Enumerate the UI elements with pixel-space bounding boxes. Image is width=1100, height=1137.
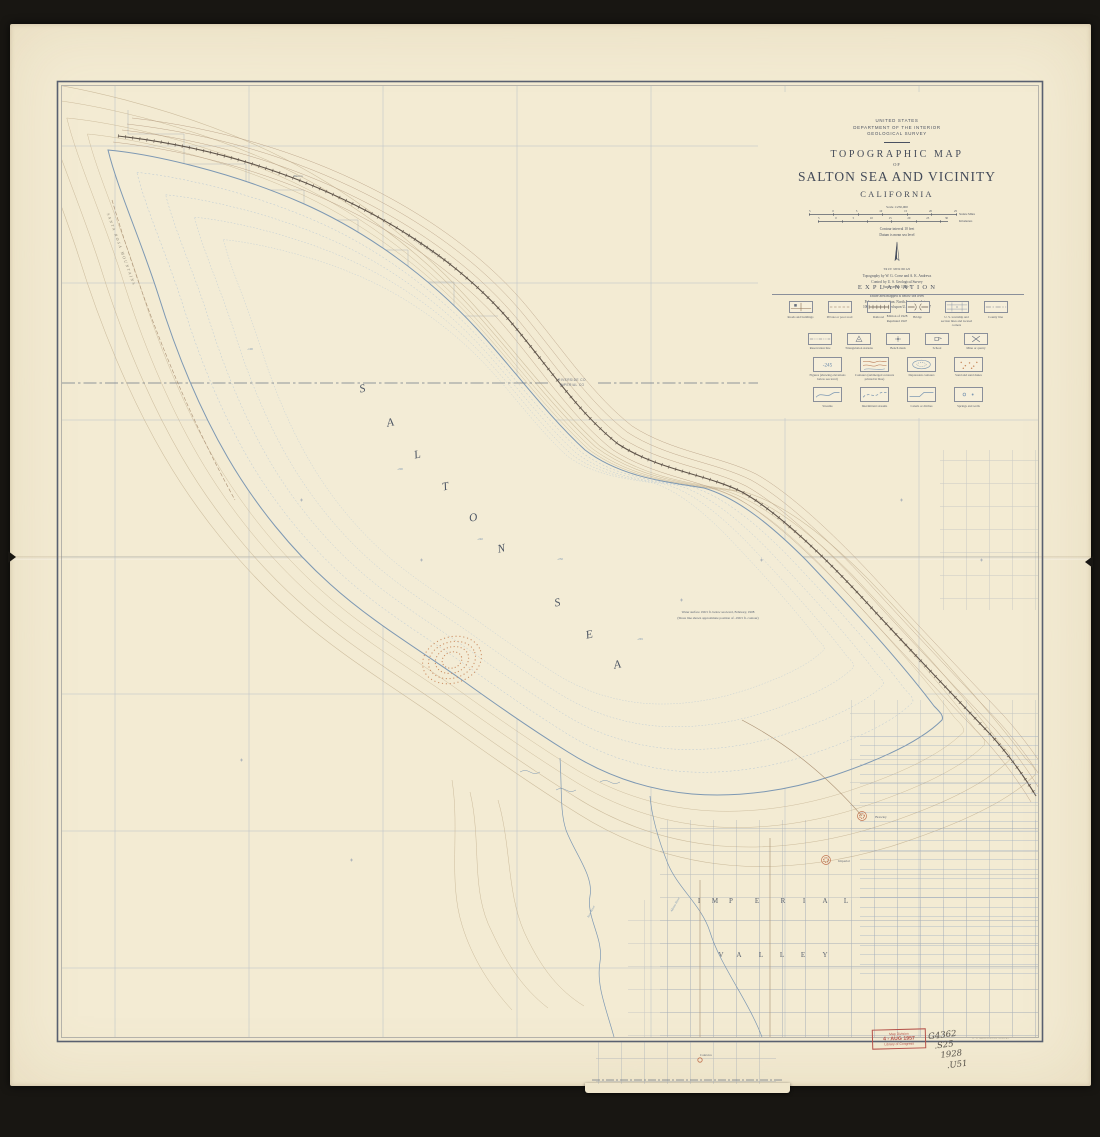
legend-item-label: Canals or ditches (911, 404, 933, 408)
datum-note: Datum is mean sea level (770, 233, 1024, 239)
mine-quarry-symbol (964, 333, 988, 345)
scale-tick: 20 (929, 210, 932, 213)
svg-text:-245: -245 (823, 362, 833, 368)
legend-item: Depression contours (901, 357, 943, 378)
school-symbol (925, 333, 949, 345)
km-bar-line (818, 220, 948, 223)
legend-item: U. S. township and section lines and loc… (940, 301, 974, 327)
km-scale-bar: 5051015202530 Kilometers (809, 217, 985, 223)
map-main-title: SALTON SEA AND VICINITY (770, 169, 1024, 185)
scale-tick: 25 (926, 217, 929, 220)
canal-district (860, 730, 1038, 980)
town-label-mecca: Mecca (293, 174, 303, 178)
legend-item-label: Roads and buildings (787, 315, 813, 319)
legend-item: -245Figures (showing elevations below se… (807, 357, 849, 382)
depth-figure: -265 (637, 637, 643, 641)
triangulation-station-symbol (847, 333, 871, 345)
scale-tick: 30 (945, 217, 948, 220)
railroad-symbol (867, 301, 891, 313)
valley-name-letter: Y (822, 951, 827, 959)
legend: EXPLANATION Roads and buildingsPrivate o… (772, 284, 1024, 408)
springs-wells-symbol (954, 387, 983, 402)
title-of: OF (770, 162, 1024, 167)
canals-ditches-symbol (907, 387, 936, 402)
legend-title: EXPLANATION (772, 284, 1024, 295)
legend-rows: Roads and buildingsPrivate or poor roadR… (772, 301, 1024, 408)
valley-name-letter: L (844, 897, 848, 905)
stamp-library: Library of Congress (873, 1041, 925, 1046)
legend-item: Contours (submerged contours printed in … (854, 357, 896, 382)
legend-item: Sand and sand dunes (948, 357, 990, 378)
map-state-title: CALIFORNIA (770, 189, 1024, 199)
legend-item-label: Streams (822, 404, 832, 408)
roads-buildings-symbol (789, 301, 813, 313)
legend-item-label: Sand and sand dunes (955, 373, 982, 377)
scale-tick: 5 (853, 217, 855, 220)
legend-item-label: Mine or quarry (966, 346, 985, 350)
scale-tick: 10 (879, 210, 882, 213)
agency-line-3: GEOLOGICAL SURVEY (770, 131, 1024, 138)
legend-row-2: Reservation lineTriangulation stationsBe… (772, 333, 1024, 351)
library-stamp: Map Division 4 - AUG 1957 Library of Con… (872, 1028, 926, 1049)
scale-tick: 5 (818, 217, 820, 220)
ornament-rule (884, 142, 910, 143)
miles-scale-bar: 50510152025 Statute Miles (809, 210, 985, 216)
miles-unit-label: Statute Miles (959, 213, 985, 216)
county-line-symbol (984, 301, 1008, 313)
scale-bars: 50510152025 Statute Miles 5051015202530 … (809, 210, 985, 223)
legend-row-3: -245Figures (showing elevations below se… (772, 357, 1024, 382)
valley-name-letter: L (759, 951, 763, 959)
valley-name-letter: A (736, 951, 741, 959)
legend-item: Reservation line (803, 333, 837, 351)
railroad-label: SOUTHERN PACIFIC R.R. (405, 232, 452, 266)
depth-figure: -240 (477, 537, 483, 541)
legend-item-label: Reservation line (810, 346, 831, 350)
intermittent-streams-symbol (860, 387, 889, 402)
scale-tick: 15 (904, 210, 907, 213)
legend-item: Bench mark (881, 333, 915, 351)
town-label-calexico: Calexico (700, 1053, 712, 1057)
depth-figure: -200 (397, 467, 403, 471)
contours-symbol (860, 357, 889, 372)
scale-tick: 0 (835, 217, 837, 220)
bottom-tab-content (592, 1042, 782, 1084)
legend-item: County line (979, 301, 1013, 319)
valley-name-letter: R (781, 897, 786, 905)
scale-tick: 5 (856, 210, 858, 213)
km-unit-label: Kilometers (959, 220, 985, 223)
agency-line-1: UNITED STATES (770, 118, 1024, 125)
legend-item: Triangulation stations (842, 333, 876, 351)
declination-diagram (886, 241, 908, 268)
scale-tick: 15 (889, 217, 892, 220)
streams-symbol (813, 387, 842, 402)
town-label-brawley: Brawley (875, 815, 887, 819)
sand-dunes-symbol (954, 357, 983, 372)
valley-name-letter: L (780, 951, 784, 959)
legend-item: Railroad (862, 301, 896, 319)
declination-label: TRUE MERIDIAN (770, 268, 1024, 271)
valley-name-letter: V (718, 951, 723, 959)
scale-tick: 10 (870, 217, 873, 220)
county-label-south: IMPERIAL CO (560, 383, 585, 387)
figures-symbol: -245 (813, 357, 842, 372)
legend-item: Private or poor road (823, 301, 857, 319)
agency-line-2: DEPARTMENT OF THE INTERIOR (770, 125, 1024, 132)
reservation-line-symbol (808, 333, 832, 345)
legend-item-label: Bench mark (890, 346, 906, 350)
legend-item-label: Depression contours (908, 373, 934, 377)
township-lines-symbol (945, 301, 969, 313)
legend-item: Intermittent streams (854, 387, 896, 408)
legend-item-label: Private or poor road (827, 315, 853, 319)
scale-tick: 20 (907, 217, 910, 220)
valley-name-letter: E (801, 951, 805, 959)
valley-name-letter: P (729, 897, 733, 905)
depth-figure: -250 (557, 557, 563, 561)
depression-contours-symbol (907, 357, 936, 372)
depth-figure: -100 (247, 347, 253, 351)
legend-item: Springs and wells (948, 387, 990, 408)
legend-item-label: Bridge (913, 315, 922, 319)
river-label-new: New River (586, 904, 597, 919)
scale-tick: 0 (832, 210, 834, 213)
county-label-north: RIVERSIDE CO (558, 378, 586, 382)
legend-item-label: U. S. township and section lines and loc… (940, 315, 974, 327)
print-note: U. S. GEOLOGICAL SURVEY (972, 1036, 1009, 1040)
legend-item-label: Springs and wells (957, 404, 980, 408)
water-note-line-2: (Shore line shown approximate position o… (648, 616, 788, 622)
valley-name-letter: M (712, 897, 719, 905)
legend-item-label: Contours (submerged contours printed in … (854, 373, 896, 381)
valley-name-letter: A (822, 897, 827, 905)
town-label-imperial: Imperial (838, 859, 850, 863)
legend-row-4: StreamsIntermittent streamsCanals or dit… (772, 387, 1024, 408)
legend-item-label: County line (988, 315, 1003, 319)
legend-item-label: School (933, 346, 942, 350)
legend-item: Mine or quarry (959, 333, 993, 351)
scanned-map-photo: { "colors": { "paper": "#f3ebd3", "frame… (0, 0, 1100, 1137)
legend-item-label: Railroad (873, 315, 884, 319)
legend-item: School (920, 333, 954, 351)
legend-row-1: Roads and buildingsPrivate or poor roadR… (772, 301, 1024, 327)
legend-item-label: Figures (showing elevations below sea le… (807, 373, 849, 381)
bridge-symbol (906, 301, 930, 313)
map-type-title: TOPOGRAPHIC MAP (770, 149, 1024, 160)
private-road-symbol (828, 301, 852, 313)
pencil-call-number: G4362.S251928.U51 (928, 1028, 968, 1073)
legend-item: Streams (807, 387, 849, 408)
miles-bar-line (809, 213, 957, 216)
valley-name-letter: E (755, 897, 759, 905)
legend-item: Canals or ditches (901, 387, 943, 408)
south-beach-lines (452, 780, 584, 1010)
legend-item-label: Triangulation stations (845, 346, 873, 350)
scale-tick: 5 (809, 210, 811, 213)
legend-item: Bridge (901, 301, 935, 319)
scale-tick: 25 (954, 210, 957, 213)
legend-item: Roads and buildings (784, 301, 818, 319)
water-level-note: Water surface 199.5 ft. below sea level,… (648, 610, 788, 621)
legend-item-label: Intermittent streams (862, 404, 888, 408)
bench-mark-symbol (886, 333, 910, 345)
